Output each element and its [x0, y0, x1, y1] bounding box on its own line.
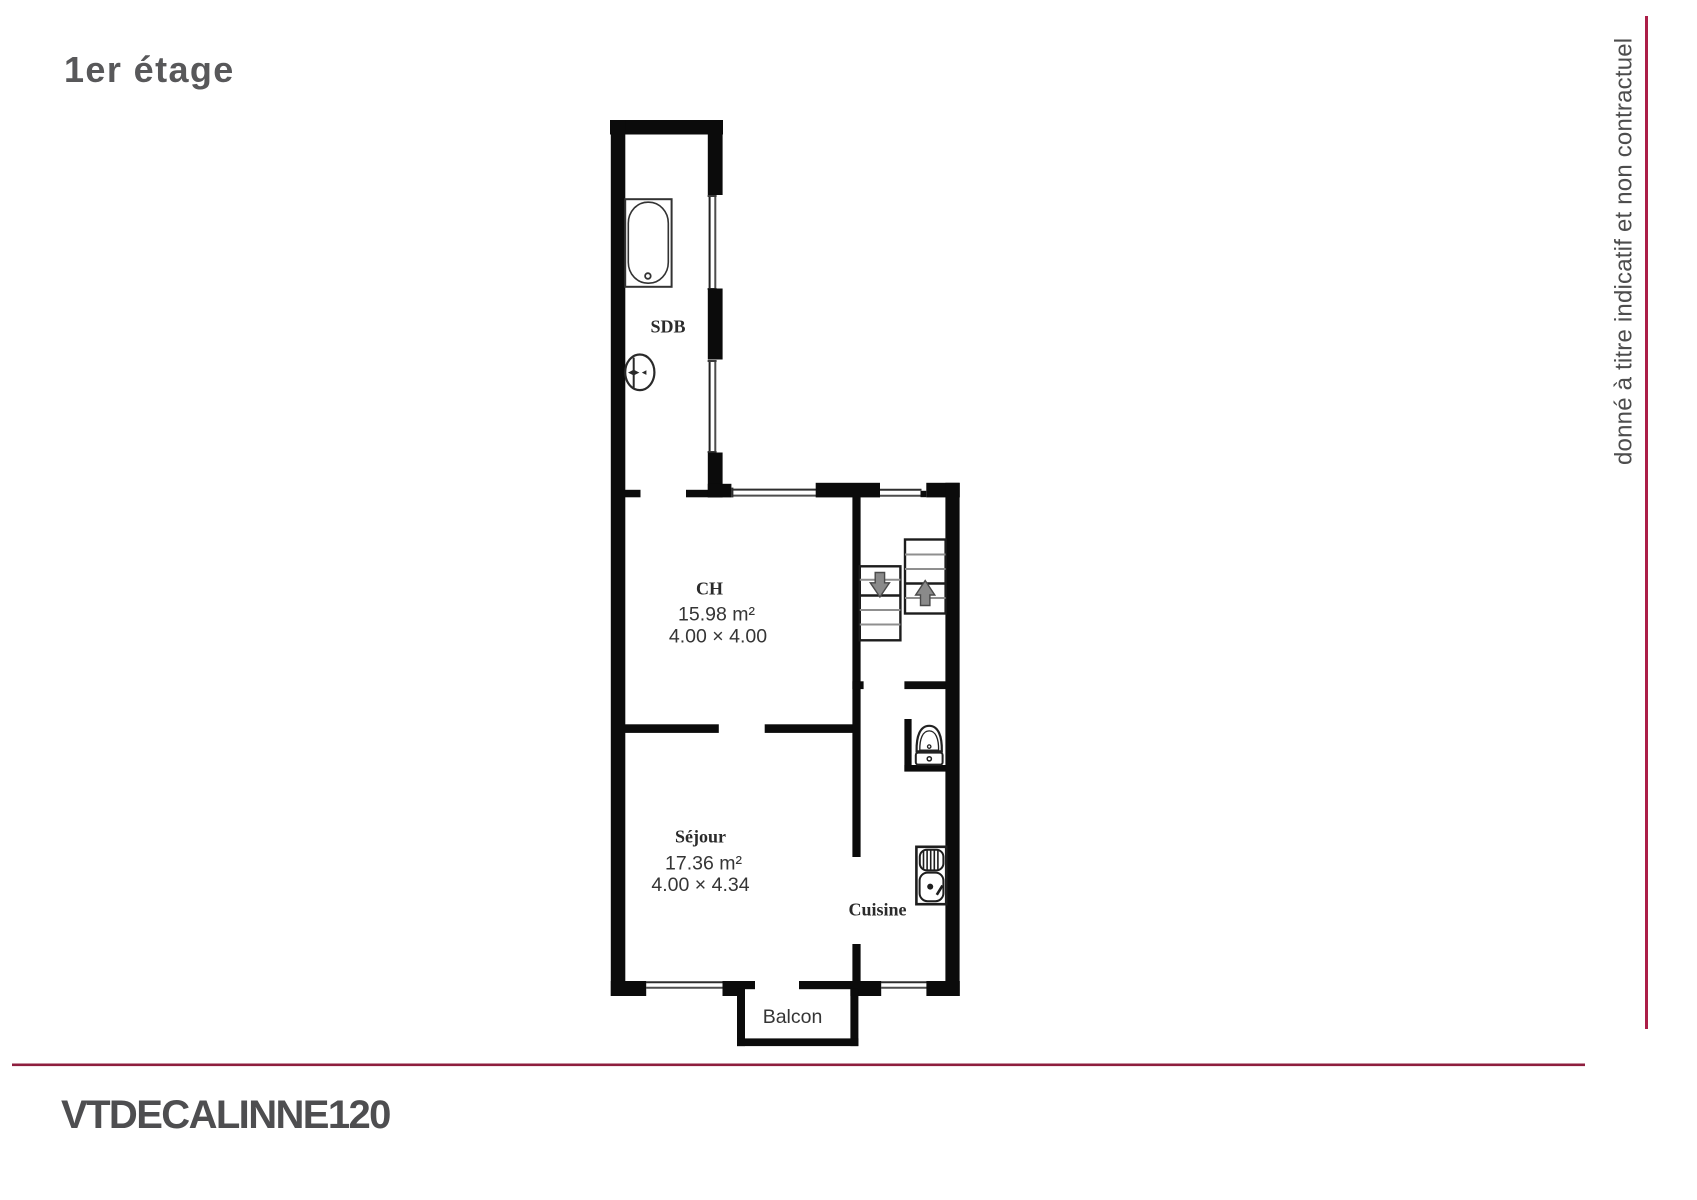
svg-text:4.00 × 4.34: 4.00 × 4.34: [651, 874, 749, 896]
svg-text:Balcon: Balcon: [763, 1006, 823, 1028]
svg-text:4.00 × 4.00: 4.00 × 4.00: [669, 626, 767, 648]
svg-text:15.98 m²: 15.98 m²: [678, 604, 755, 626]
svg-text:17.36 m²: 17.36 m²: [665, 853, 742, 875]
svg-text:CH: CH: [696, 579, 723, 599]
svg-text:Cuisine: Cuisine: [848, 900, 906, 920]
svg-text:VTDECALINNE120: VTDECALINNE120: [61, 1093, 390, 1137]
svg-text:SDB: SDB: [650, 317, 685, 337]
svg-text:donné à titre indicatif et non: donné à titre indicatif et non contractu…: [1611, 38, 1638, 465]
svg-text:Séjour: Séjour: [675, 827, 726, 847]
svg-text:1er étage: 1er étage: [64, 49, 235, 90]
